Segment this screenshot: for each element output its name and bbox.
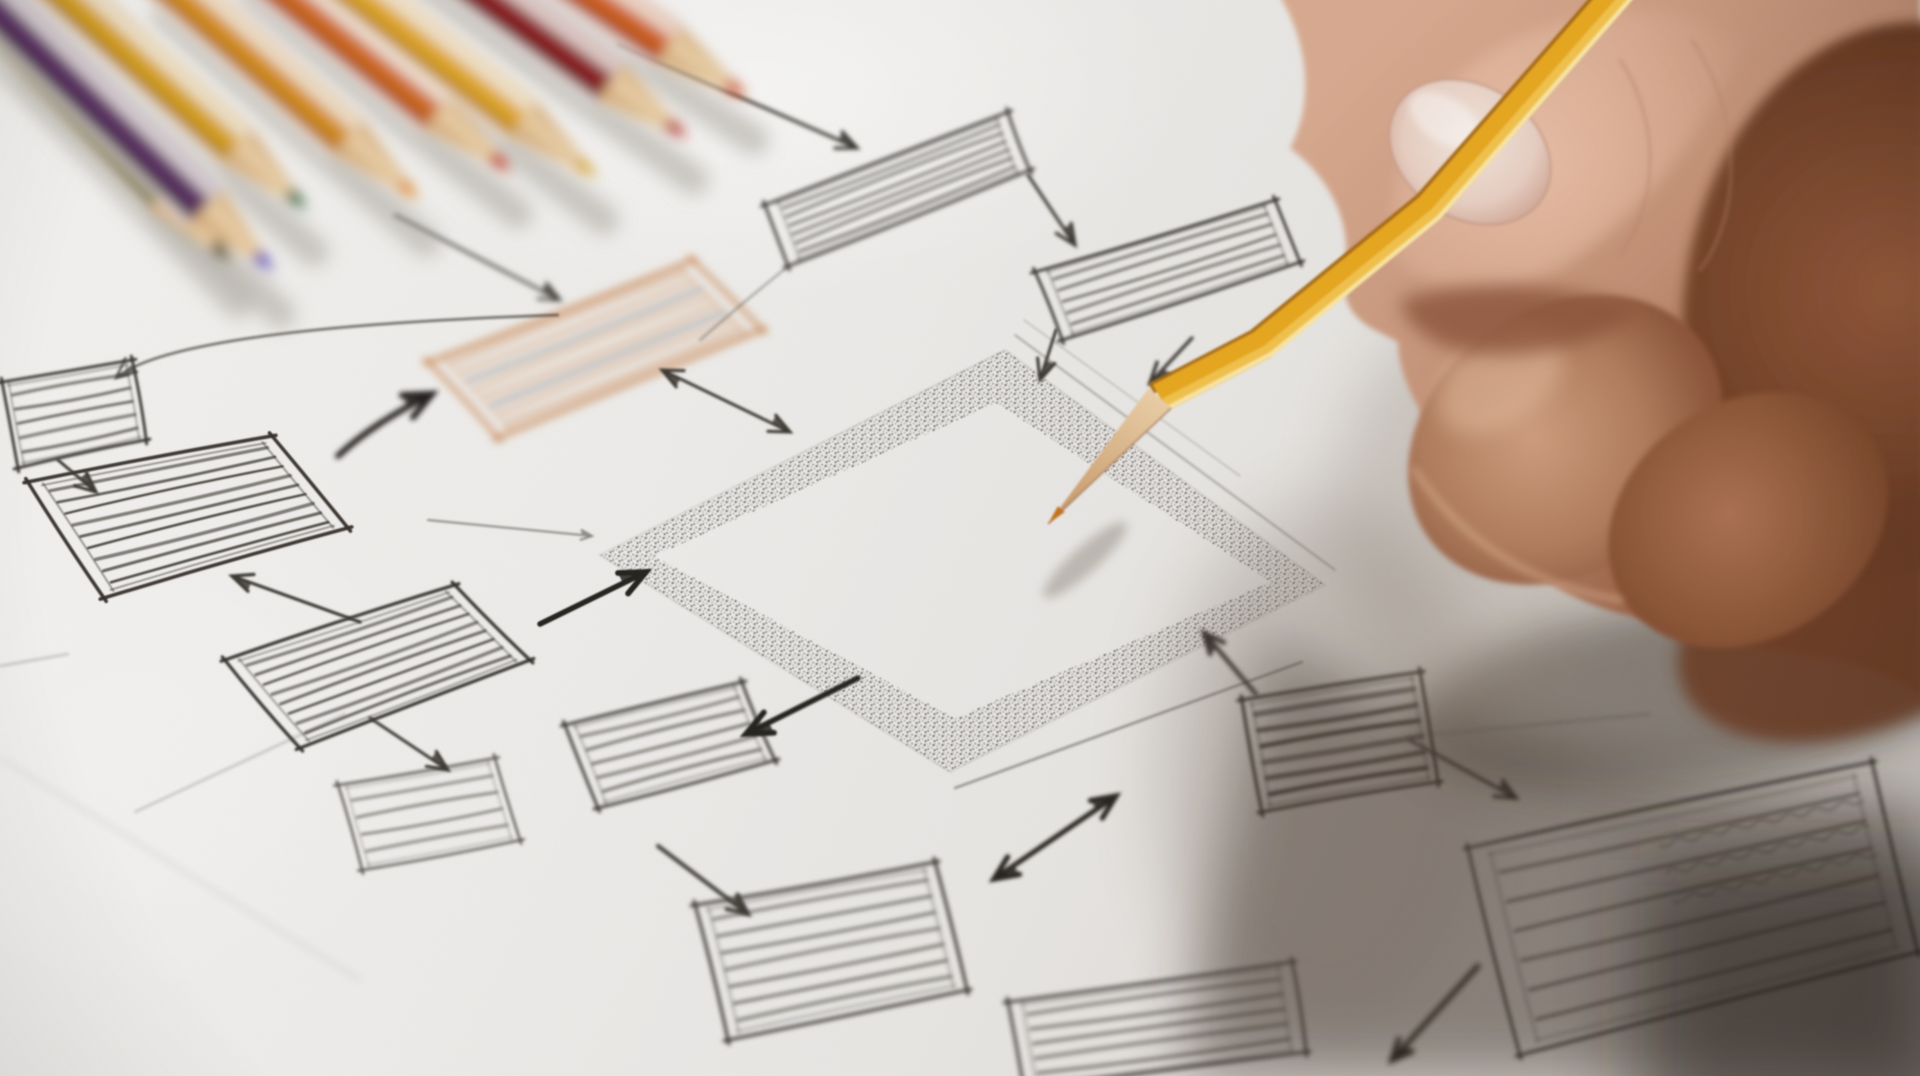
photo-scene bbox=[0, 0, 1920, 1076]
vignette bbox=[0, 0, 1920, 1076]
flowchart-photo-svg bbox=[0, 0, 1920, 1076]
